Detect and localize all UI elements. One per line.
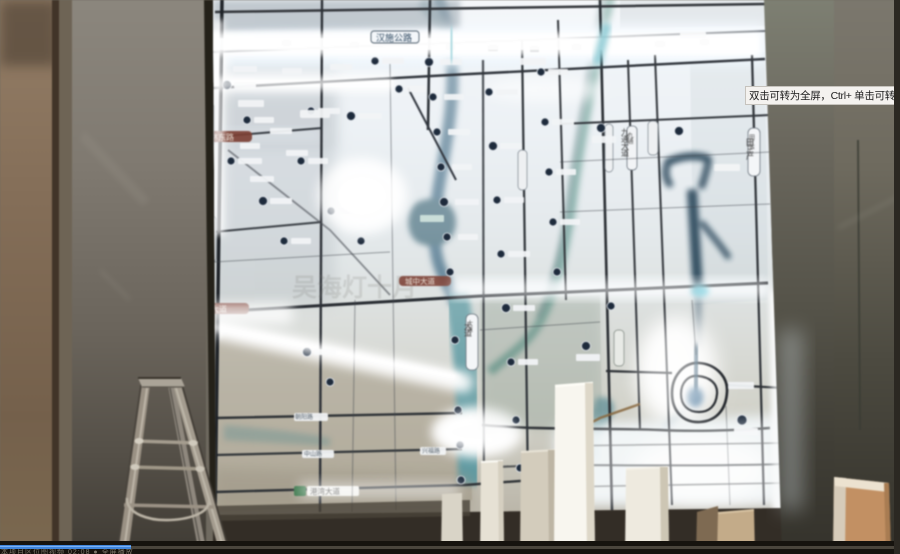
svg-text:兴福路: 兴福路 xyxy=(422,447,440,455)
svg-text:中山路: 中山路 xyxy=(304,450,322,458)
svg-text:田三产: 田三产 xyxy=(748,134,755,153)
svg-text:汉施公路: 汉施公路 xyxy=(376,32,412,43)
svg-text:吴海灯十月: 吴海灯十月 xyxy=(292,273,417,302)
svg-text:九通: 九通 xyxy=(626,131,633,145)
svg-text:大道: 大道 xyxy=(466,319,473,333)
svg-text:朝阳路: 朝阳路 xyxy=(295,413,313,421)
svg-text:城中大道: 城中大道 xyxy=(405,276,435,286)
